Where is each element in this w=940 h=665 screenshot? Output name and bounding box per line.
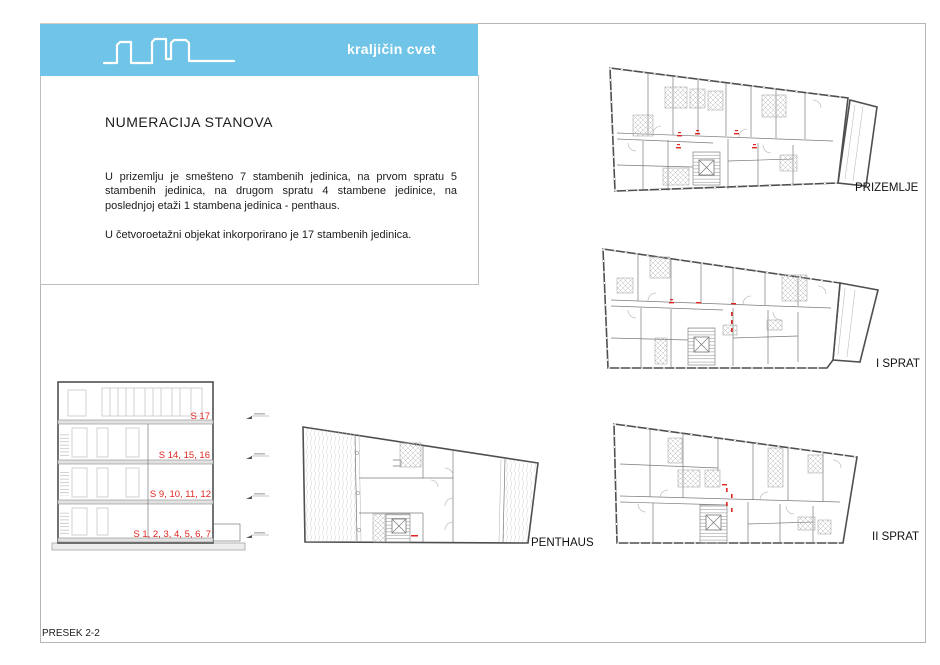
elevation-marker — [246, 532, 269, 538]
page-title: NUMERACIJA STANOVA — [105, 114, 273, 130]
floor-plan-ii-sprat — [608, 416, 898, 571]
description-paragraph-2: U četvoroetažni objekat inkorporirano je… — [105, 228, 457, 242]
info-panel: NUMERACIJA STANOVA U prizemlju je smešte… — [40, 75, 479, 285]
section-floor-label-second: S 14, 15, 16 — [159, 450, 210, 461]
floor-plan-penthaus — [293, 418, 593, 550]
floor-plan-prizemlje — [593, 55, 893, 205]
section-floor-label-first: S 9, 10, 11, 12 — [150, 489, 211, 500]
plan-label-penthaus: PENTHAUS — [531, 537, 594, 549]
section-floor-label-ground: S 1, 2, 3, 4, 5, 6, 7 — [133, 529, 211, 540]
plan-label-ii-sprat: II SPRAT — [872, 531, 919, 543]
plan-label-i-sprat: I SPRAT — [876, 358, 920, 370]
elevation-marker — [246, 453, 269, 459]
section-floor-label-penthouse: S 17 — [190, 411, 210, 422]
floor-plan-i-sprat — [593, 238, 893, 398]
section-drawing: S 17 S 14, 15, 16 S 9, 10, 11, 12 S 1, 2… — [50, 372, 275, 562]
skyline-icon — [102, 30, 272, 70]
plan-label-prizemlje: PRIZEMLJE — [855, 182, 918, 194]
description-paragraph-1: U prizemlju je smešteno 7 stambenih jedi… — [105, 170, 457, 213]
apartment-number-marks — [411, 535, 418, 537]
elevation-marker — [246, 493, 269, 499]
header-banner: kraljičin cvet — [40, 23, 478, 76]
elevation-marker — [246, 413, 269, 419]
project-title: kraljičin cvet — [347, 41, 436, 57]
sheet-caption: PRESEK 2-2 — [42, 628, 100, 639]
